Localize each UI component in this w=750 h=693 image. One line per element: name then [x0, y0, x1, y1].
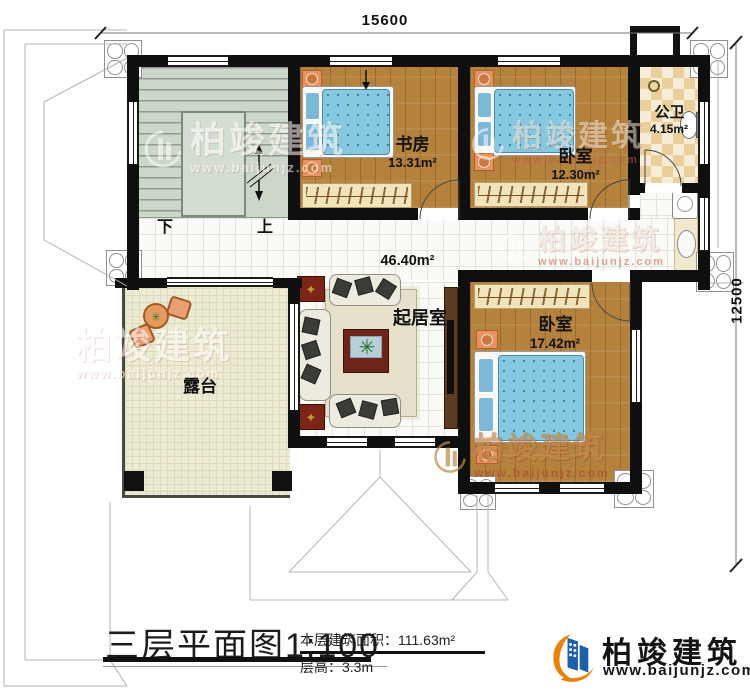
- living-label: 起居室: [375, 309, 465, 328]
- wall-bedroom-bottom-left: [458, 270, 470, 494]
- window: [127, 102, 139, 164]
- stair-treads-right: [246, 111, 288, 157]
- nightstand: [476, 445, 498, 464]
- window: [560, 482, 604, 494]
- door-opening: [588, 208, 628, 220]
- floor-area-text: 本层建筑面积：111.63m²: [300, 630, 455, 650]
- living-area: 46.40m²: [365, 254, 450, 269]
- window: [698, 198, 710, 250]
- window: [330, 55, 392, 67]
- bathroom-area: 4.15m²: [638, 123, 700, 136]
- wall-right: [698, 55, 710, 290]
- wardrobe-hangers: [478, 288, 586, 305]
- window: [630, 330, 642, 402]
- dimension-right: 12500: [729, 266, 746, 336]
- bedroom-bottom-area: 17.42m²: [505, 337, 605, 351]
- stair-down-label: 下: [151, 220, 179, 237]
- wardrobe-hangers: [478, 186, 584, 203]
- bed-pillow: [305, 92, 320, 120]
- bedroom-bottom-bed-mattress: [498, 355, 584, 441]
- bed-pillow: [305, 123, 320, 151]
- terrace-corner-post: [124, 471, 144, 491]
- wall-left: [127, 55, 139, 290]
- brand-logo-icon: [545, 628, 597, 686]
- nightstand: [476, 330, 498, 349]
- bedroom-top-wardrobe: [474, 182, 588, 207]
- study-wardrobe: [302, 183, 412, 208]
- potted-plant-icon: ✳: [355, 336, 379, 360]
- stair-treads-left: [139, 111, 181, 218]
- window: [288, 304, 300, 410]
- door-opening: [418, 208, 458, 220]
- wall-bedroom-bottom-top: [458, 270, 710, 282]
- door-opening: [592, 270, 630, 282]
- watermark-logo-icon: [28, 334, 70, 376]
- dimension-top: 15600: [350, 12, 420, 29]
- terrace-window: [167, 277, 273, 287]
- window: [327, 436, 367, 448]
- bed-pillow: [478, 358, 494, 393]
- nightstand: [474, 153, 494, 171]
- window: [495, 482, 539, 494]
- bedroom-bottom-wardrobe: [474, 284, 590, 309]
- side-table: ✦: [297, 404, 325, 430]
- bed-pillow: [477, 92, 492, 118]
- door-opening: [645, 183, 682, 193]
- stair-up-label: 上: [251, 220, 279, 237]
- wall-terrace-top-left: [115, 278, 167, 288]
- bed-pillow: [477, 121, 492, 147]
- nightstand: [302, 159, 322, 177]
- wall-stair-study: [288, 67, 300, 220]
- terrace-label: 露台: [160, 378, 240, 396]
- stair-treads-top: [139, 67, 288, 111]
- floor-height-text: 层高：3.3m: [300, 657, 373, 677]
- bedroom-top-label: 卧室: [528, 148, 623, 166]
- tv-icon: [447, 320, 454, 394]
- washing-machine: [672, 189, 698, 219]
- shower-head-icon: [648, 80, 660, 92]
- window: [498, 55, 560, 67]
- sofa-pillow: [302, 317, 321, 336]
- sofa-pillow: [381, 398, 400, 417]
- bedroom-bottom-label: 卧室: [508, 316, 603, 334]
- bathroom-label: 公卫: [642, 105, 697, 121]
- stair-well: [181, 111, 246, 217]
- bed-pillow: [478, 397, 494, 432]
- window: [395, 436, 435, 448]
- wall-living-bottom: [288, 436, 470, 448]
- laundry-sink: [677, 230, 696, 258]
- terrace-corner-post: [272, 471, 292, 491]
- floor-plan-canvas: ✳ ✳ ✦ ✦: [0, 0, 750, 693]
- bedroom-top-area: 12.30m²: [528, 168, 623, 182]
- window: [168, 55, 228, 67]
- brand-url: www.baijunjz.com: [603, 662, 750, 679]
- wardrobe-hangers: [306, 187, 408, 204]
- wall-bedroom-bottom-bottom: [458, 482, 642, 494]
- info-divider: [300, 651, 485, 654]
- bedroom-top-bed-mattress: [494, 89, 574, 153]
- study-label: 书房: [360, 136, 465, 154]
- study-area: 13.31m²: [360, 156, 465, 170]
